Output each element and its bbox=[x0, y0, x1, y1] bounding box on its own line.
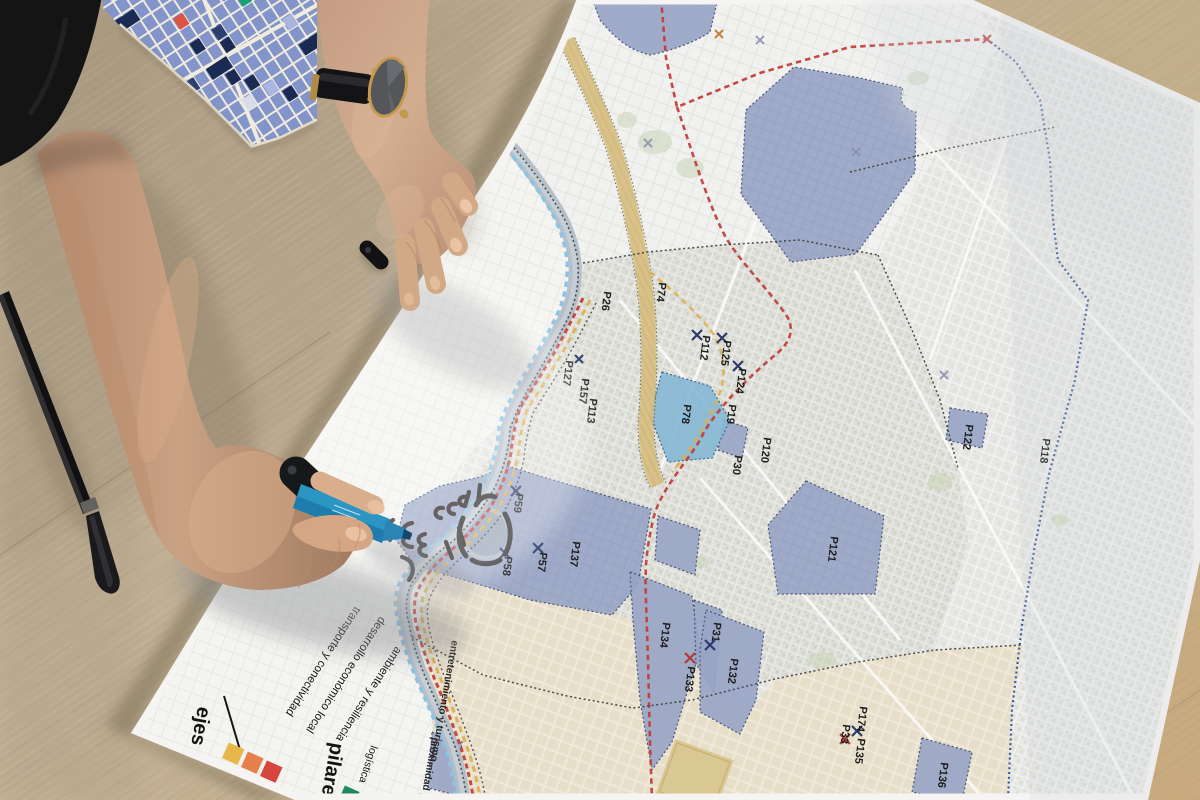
svg-text:P19: P19 bbox=[724, 404, 738, 425]
svg-text:P26: P26 bbox=[599, 291, 613, 312]
svg-text:P30: P30 bbox=[730, 455, 744, 476]
svg-text:P31: P31 bbox=[709, 622, 723, 643]
svg-text:P78: P78 bbox=[679, 404, 693, 425]
svg-text:P74: P74 bbox=[654, 282, 668, 304]
svg-text:P33: P33 bbox=[838, 724, 852, 745]
svg-text:P57: P57 bbox=[535, 552, 549, 573]
